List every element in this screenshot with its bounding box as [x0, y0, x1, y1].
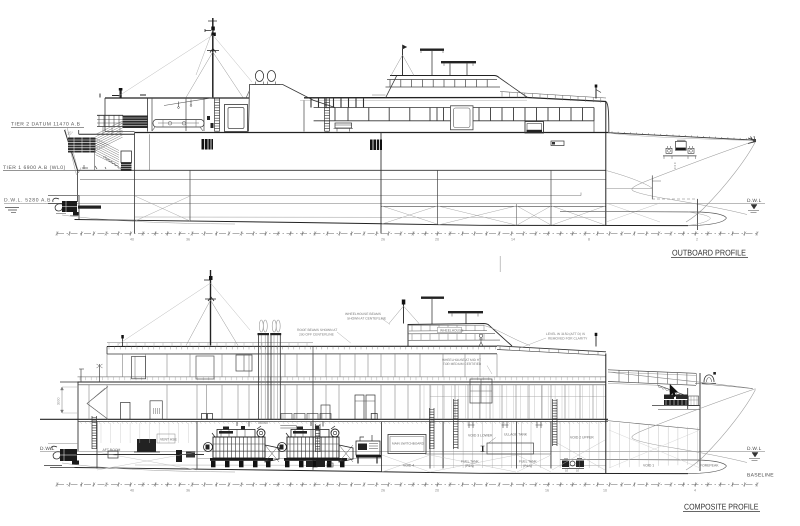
svg-text:SHOWN AT CENTERLINE: SHOWN AT CENTERLINE — [347, 316, 387, 320]
svg-text:FUEL TANK: FUEL TANK — [519, 460, 538, 464]
svg-text:ULLAGE TANK: ULLAGE TANK — [504, 433, 528, 437]
svg-text:26: 26 — [381, 238, 385, 242]
svg-text:WHEELHOUSE AT MID HT: WHEELHOUSE AT MID HT — [442, 358, 481, 362]
svg-text:4: 4 — [694, 489, 696, 493]
svg-text:AFT ROOM: AFT ROOM — [103, 448, 121, 452]
svg-text:(P&S): (P&S) — [465, 464, 474, 468]
svg-text:3000: 3000 — [57, 397, 61, 405]
svg-text:LEVEL W 3150 (AFT D) IS: LEVEL W 3150 (AFT D) IS — [546, 332, 586, 336]
svg-text:14: 14 — [511, 238, 515, 242]
svg-text:D.W.L. 5280 A.B: D.W.L. 5280 A.B — [4, 197, 51, 203]
svg-text:40: 40 — [130, 489, 134, 493]
svg-text:15°: 15° — [67, 131, 73, 136]
svg-text:10: 10 — [576, 469, 580, 473]
svg-text:20: 20 — [435, 489, 439, 493]
svg-text:TIER 2 DATUM 11470 A.B: TIER 2 DATUM 11470 A.B — [11, 122, 81, 128]
svg-text:10: 10 — [603, 489, 607, 493]
svg-text:VOID 3 LOWER: VOID 3 LOWER — [468, 434, 493, 438]
svg-text:36: 36 — [186, 238, 190, 242]
svg-text:TIER 1 6900 A.B (WL0): TIER 1 6900 A.B (WL0) — [3, 165, 66, 171]
svg-text:20: 20 — [435, 238, 439, 242]
svg-text:COMPOSITE PROFILE: COMPOSITE PROFILE — [684, 501, 759, 511]
svg-text:OUTBOARD PROFILE: OUTBOARD PROFILE — [672, 247, 746, 257]
svg-text:FUEL TANK: FUEL TANK — [461, 460, 480, 464]
svg-text:FOREPEAK: FOREPEAK — [700, 464, 719, 468]
svg-text:8: 8 — [588, 238, 590, 242]
svg-text:2: 2 — [696, 238, 698, 242]
svg-text:40: 40 — [130, 238, 134, 242]
svg-text:VOID 2 UPPER: VOID 2 UPPER — [570, 436, 594, 440]
svg-text:FOR MEDIUM CERTIFIED: FOR MEDIUM CERTIFIED — [443, 362, 482, 366]
svg-text:10: 10 — [565, 469, 569, 473]
svg-text:16: 16 — [545, 489, 549, 493]
svg-text:D.W.L: D.W.L — [747, 446, 762, 452]
svg-text:MAIN SWITCHBOARD: MAIN SWITCHBOARD — [392, 442, 425, 446]
svg-text:WHEELHOUSE: WHEELHOUSE — [440, 329, 464, 333]
svg-text:VOID 1: VOID 1 — [643, 464, 654, 468]
svg-text:BASELINE: BASELINE — [747, 473, 774, 479]
svg-text:26: 26 — [381, 489, 385, 493]
svg-text:36: 36 — [186, 489, 190, 493]
svg-text:VOID 4: VOID 4 — [403, 464, 414, 468]
svg-text:D.W.L: D.W.L — [747, 198, 762, 204]
svg-text:REMOVED FOR CLARITY: REMOVED FOR CLARITY — [548, 337, 588, 341]
svg-text:200 OFF CENTERLINE: 200 OFF CENTERLINE — [299, 332, 335, 336]
svg-text:(P&S): (P&S) — [523, 464, 532, 468]
